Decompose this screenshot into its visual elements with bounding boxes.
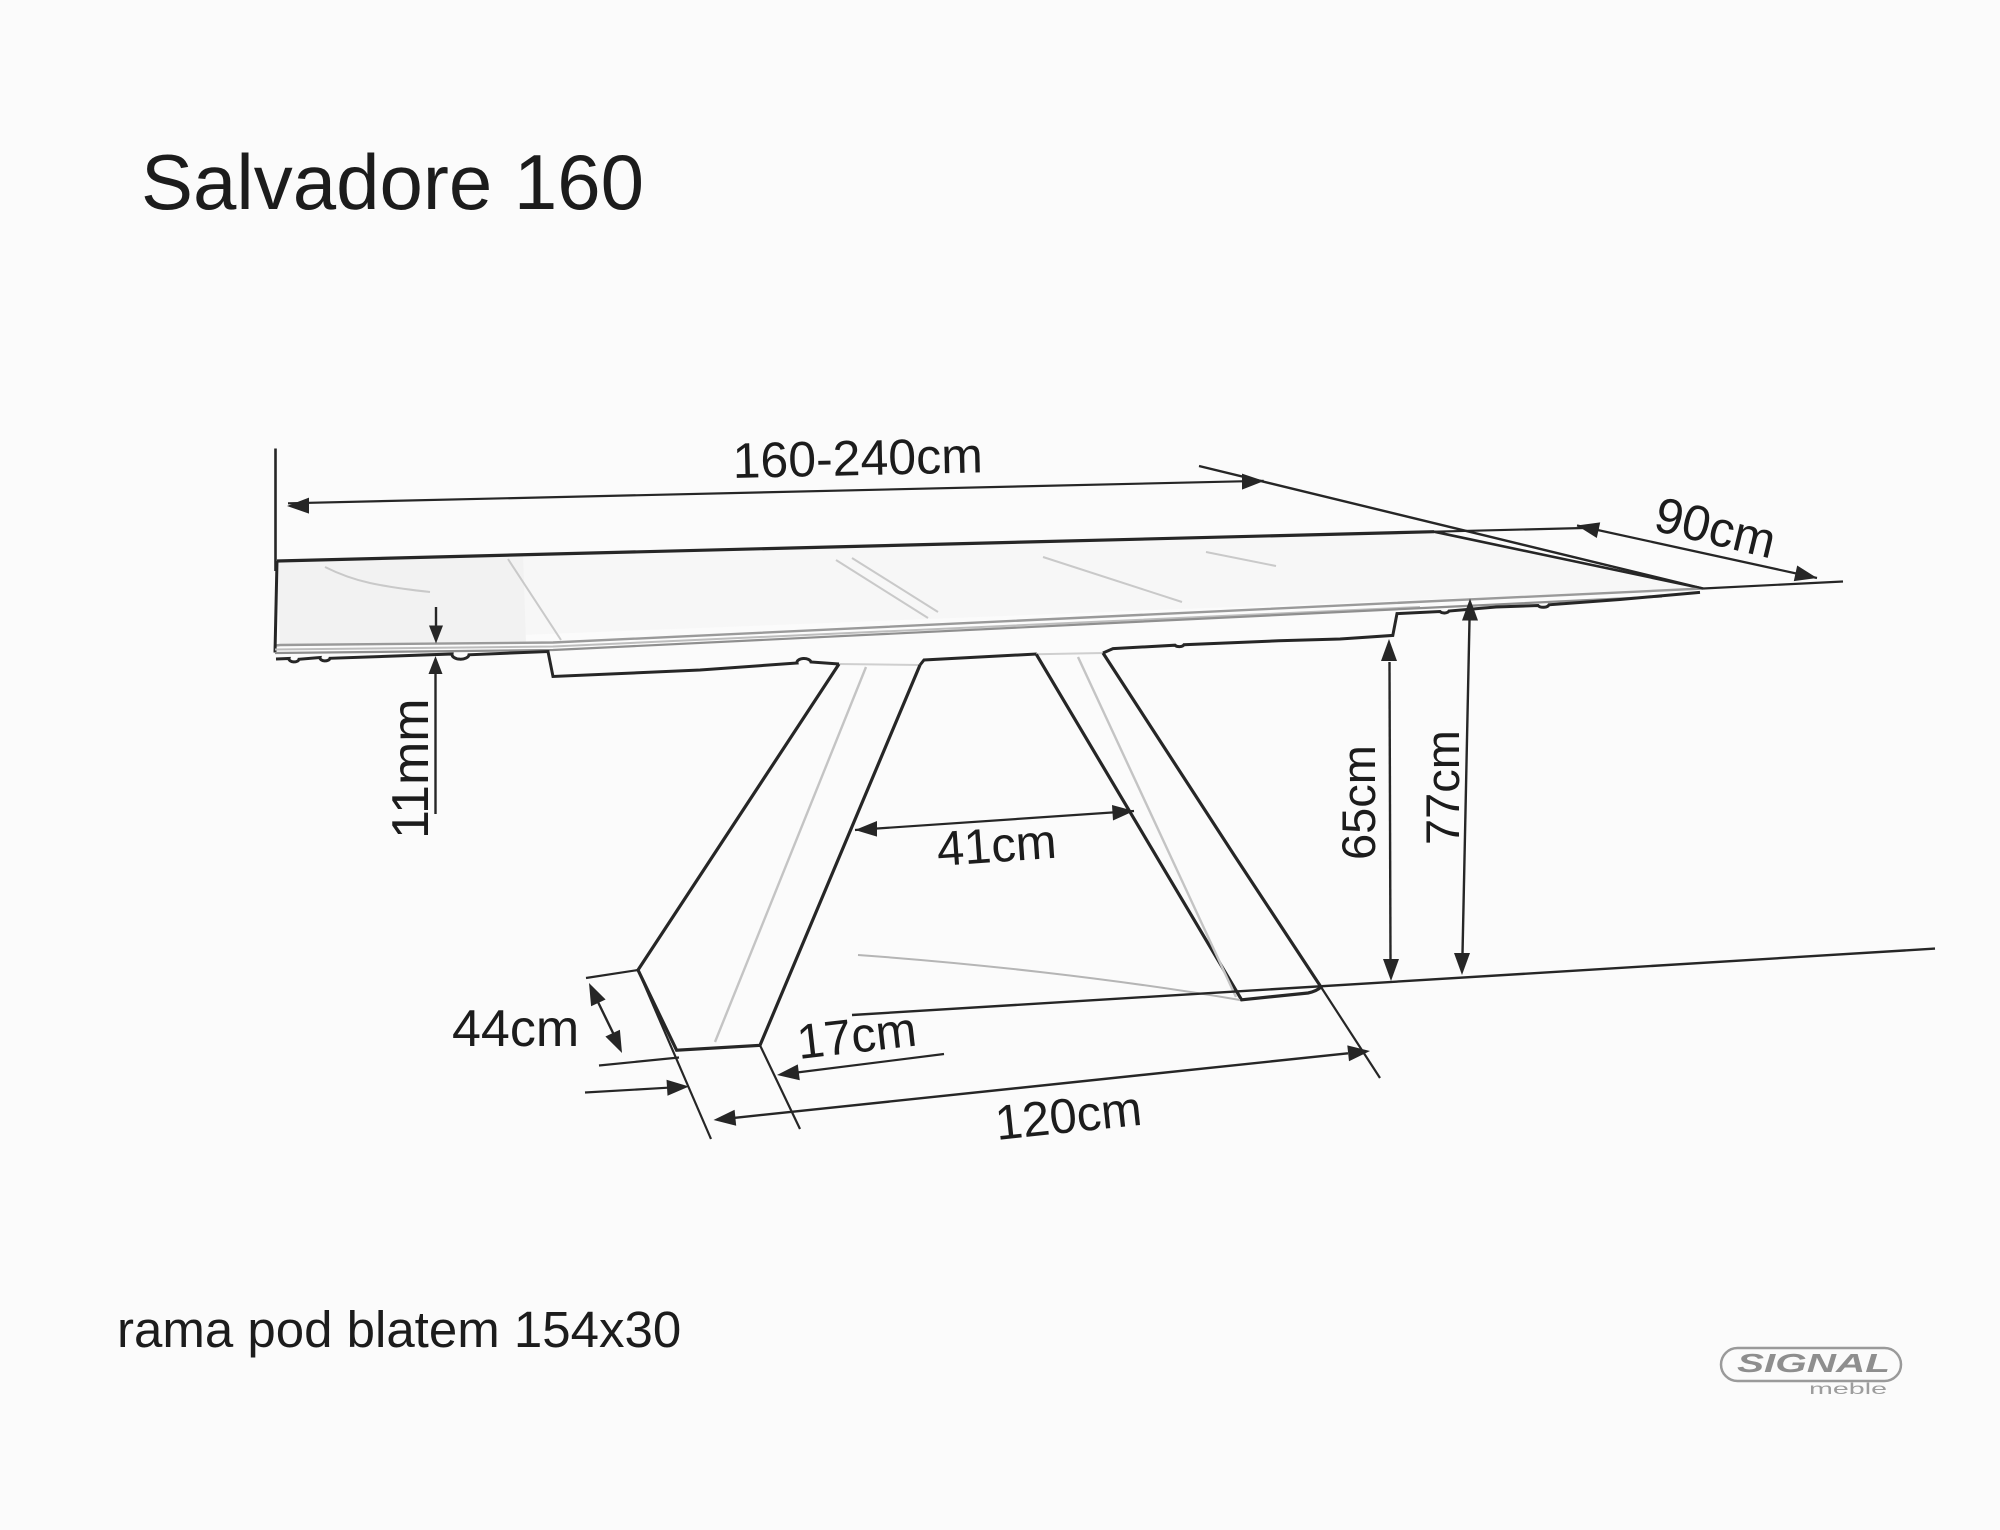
svg-text:SIGNAL: SIGNAL [1737,1348,1890,1378]
svg-text:77cm: 77cm [1416,730,1469,845]
svg-text:meble: meble [1809,1381,1887,1398]
svg-text:Salvadore 160: Salvadore 160 [141,138,644,226]
svg-text:160-240cm: 160-240cm [732,427,983,489]
svg-text:41cm: 41cm [935,815,1058,877]
svg-text:65cm: 65cm [1332,745,1385,860]
svg-text:rama pod blatem 154x30: rama pod blatem 154x30 [117,1301,681,1358]
svg-text:44cm: 44cm [452,1000,579,1058]
svg-text:11mm: 11mm [382,698,440,839]
